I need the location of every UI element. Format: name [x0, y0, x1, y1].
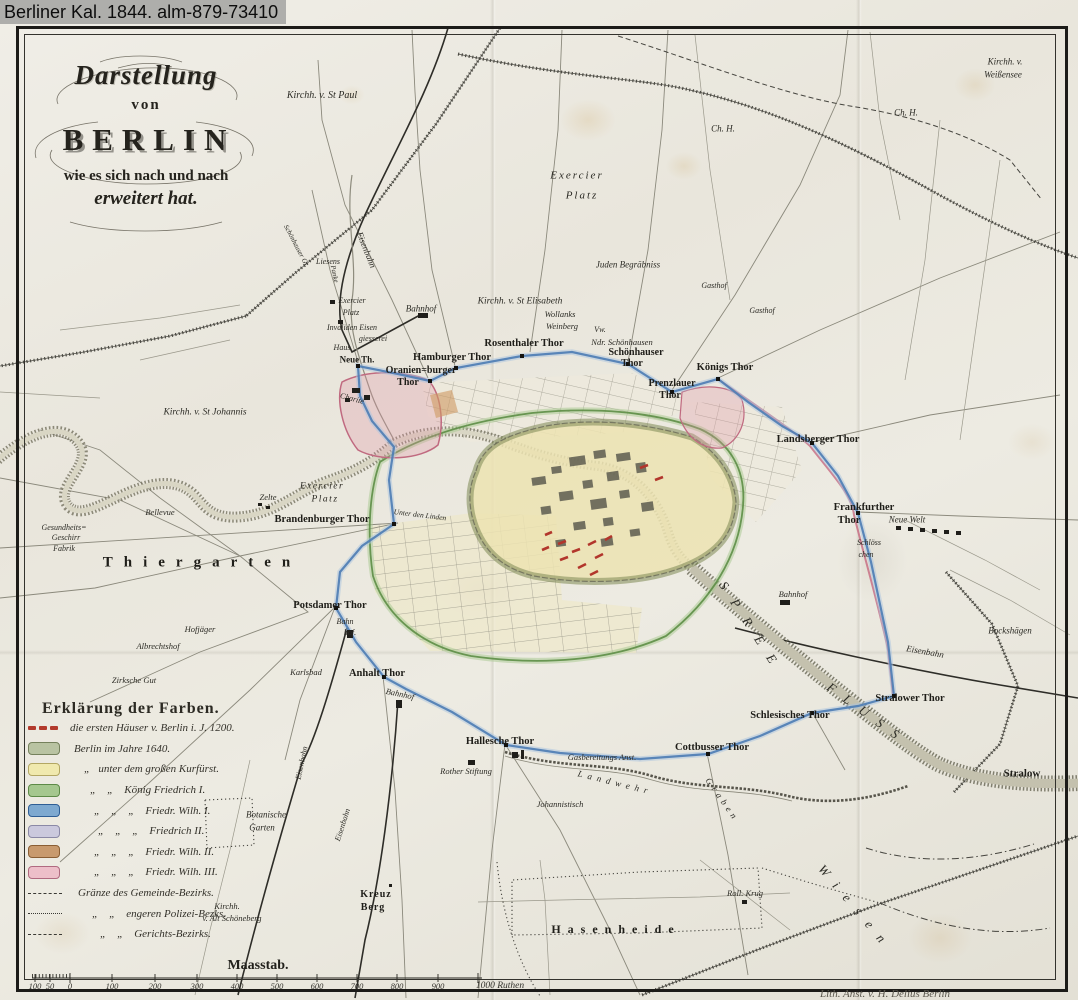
legend-swatch	[28, 866, 68, 879]
legend-swatch	[28, 726, 68, 730]
legend-label: „ unter dem großen Kurfürst.	[68, 763, 219, 775]
legend-heading: Erklärung der Farben.	[28, 700, 278, 718]
map-label: Landwehr	[577, 769, 653, 796]
map-label: Panke	[329, 265, 339, 284]
map-label: Eisenbahn	[295, 746, 310, 781]
title-subtitle-2: erweitert hat.	[36, 188, 256, 210]
map-label: Kirchh. v. St Elisabeth	[478, 297, 563, 307]
map-label: Königs Thor	[697, 363, 754, 374]
legend-label: die ersten Häuser v. Berlin i. J. 1200.	[68, 722, 234, 734]
map-label: Thor	[659, 391, 681, 401]
legend-row: „ unter dem großen Kurfürst.	[28, 759, 278, 780]
map-label: Cottbusser Thor	[675, 743, 749, 754]
map-label: Bahn	[337, 618, 354, 626]
map-label: Exercier	[300, 482, 344, 492]
map-label: Eisenbahn	[355, 231, 378, 270]
map-label: Gesundheits=	[42, 524, 87, 532]
legend-swatch	[28, 893, 68, 894]
map-label: Landsberger Thor	[777, 435, 860, 446]
map-label: Thor	[838, 516, 861, 527]
legend-row: Berlin im Jahre 1640.	[28, 739, 278, 760]
map-label: Kreuz	[360, 890, 391, 900]
legend-row: die ersten Häuser v. Berlin i. J. 1200.	[28, 718, 278, 739]
map-label: Graben	[704, 776, 741, 823]
map-label: Bahnhof	[779, 590, 808, 599]
legend-label: „ „ „ Friedr. Wilh. II.	[68, 846, 214, 858]
map-label: Anhalt Thor	[349, 669, 405, 680]
imprint: Lith. Anst. v. H. Delius Berlin	[820, 988, 950, 1000]
map-label: Hamburger Thor	[413, 353, 491, 364]
map-label: Prenzlauer	[648, 379, 695, 389]
title-subtitle-1: wie es sich nach und nach	[36, 168, 256, 185]
map-label: Weinberg	[546, 322, 578, 331]
map-label: Zelte	[260, 493, 277, 502]
legend-row: Gränze des Gemeinde-Bezirks.	[28, 883, 278, 904]
map-label: Bahnhof	[385, 687, 415, 701]
map-label: Haus	[334, 344, 351, 352]
map-label: Karlsbad	[290, 668, 322, 677]
map-label: Ch. H.	[894, 109, 918, 118]
map-label: Kirchh. v. St Johannis	[163, 408, 246, 418]
map-label: Unter den Linden	[393, 508, 446, 522]
map-label: Stralower Thor	[875, 694, 944, 705]
map-label: Schlöss	[857, 539, 881, 547]
map-label: Thiergarten	[103, 556, 301, 571]
map-label: Brandenburger Thor	[274, 515, 369, 526]
map-label: hof.	[344, 629, 356, 637]
map-label: Stralow	[1004, 769, 1041, 780]
map-label: Oranien=burger	[386, 366, 457, 376]
title-darstellung: Darstellung	[36, 60, 256, 91]
map-label: Platz	[343, 309, 359, 317]
map-sheet: Kirchh. v. St PaulKirchh. v.WeißenseeCh.…	[0, 0, 1078, 1000]
legend-swatch	[28, 934, 68, 935]
map-label: Hofjäger	[185, 625, 216, 634]
map-label: Gasthof	[701, 282, 726, 290]
map-label: Vw.	[594, 326, 606, 334]
legend-label: „ „ „ Friedr. Wilh. I.	[68, 805, 210, 817]
map-label: Potsdamer Thor	[293, 601, 366, 612]
legend-swatch	[28, 825, 68, 838]
legend: Erklärung der Farben. die ersten Häuser …	[28, 700, 278, 945]
map-label: Kirchh. v. St Paul	[287, 91, 357, 101]
legend-row: „ „ engeren Polizei-Bezks.	[28, 903, 278, 924]
map-label: Schlesisches Thor	[750, 711, 829, 722]
map-label: Fabrik	[53, 545, 75, 553]
legend-label: „ „ engeren Polizei-Bezks.	[68, 908, 226, 920]
map-label: Schönhauser	[608, 348, 663, 358]
legend-label: Gränze des Gemeinde-Bezirks.	[68, 887, 214, 899]
legend-entries: die ersten Häuser v. Berlin i. J. 1200.B…	[28, 718, 278, 945]
map-label: Rosenthaler Thor	[484, 339, 563, 350]
map-label: Hasenheide	[551, 923, 680, 935]
map-label: Exercier	[338, 297, 365, 305]
map-label: Juden Begräbniss	[596, 261, 660, 270]
map-label: Zirksche Gut	[112, 676, 156, 685]
legend-row: „ „ „ Friedrich II.	[28, 821, 278, 842]
map-label: Roll. Krug	[727, 889, 763, 898]
map-label: Rother Stiftung	[440, 767, 492, 776]
legend-label: Berlin im Jahre 1640.	[68, 743, 170, 755]
map-label: Neue Th.	[340, 356, 375, 365]
map-label: Neue Welt	[889, 516, 925, 525]
map-label: Johannistisch	[537, 800, 584, 809]
map-label: Thor	[397, 378, 419, 388]
map-label: Ndr. Schönhausen	[591, 338, 652, 347]
legend-swatch	[28, 845, 68, 858]
legend-label: „ „ „ Friedrich II.	[68, 825, 204, 837]
legend-row: „ „ „ Friedr. Wilh. II.	[28, 842, 278, 863]
legend-row: „ „ „ Friedr. Wilh. III.	[28, 862, 278, 883]
legend-row: „ „ König Friedrich I.	[28, 780, 278, 801]
map-label: Berg	[361, 903, 386, 913]
map-label: Frankfurther	[834, 503, 895, 514]
map-label: Gasthof	[749, 307, 774, 315]
map-label: Thor	[621, 359, 643, 369]
legend-label: „ „ König Friedrich I.	[68, 784, 205, 796]
legend-swatch	[28, 763, 68, 776]
map-label: FLUSS	[825, 680, 912, 748]
map-label: Albrechtshof	[136, 642, 179, 651]
title-berlin: BERLIN	[36, 122, 256, 158]
map-label: Eisenbahn	[906, 644, 945, 659]
map-label: Wollanks	[545, 310, 576, 319]
map-label: Charité	[339, 392, 365, 406]
map-label: Hallesche Thor	[466, 737, 534, 748]
map-label: SPREE	[717, 579, 787, 677]
map-label: Bockshägen	[988, 627, 1031, 636]
map-label: Invaliden Eisen	[327, 324, 377, 332]
map-label: Platz	[566, 191, 599, 202]
legend-label: „ „ Gerichts-Bezirks.	[68, 928, 211, 940]
map-label: giesserei	[359, 335, 387, 343]
legend-swatch	[28, 804, 68, 817]
legend-swatch	[28, 913, 68, 914]
map-label: Bellevue	[145, 508, 174, 517]
map-label: Exercier	[550, 171, 603, 182]
watermark-label: Berliner Kal. 1844. alm-879-73410	[0, 0, 286, 24]
legend-row: „ „ Gerichts-Bezirks.	[28, 924, 278, 945]
legend-row: „ „ „ Friedr. Wilh. I.	[28, 800, 278, 821]
title-cartouche: Darstellung von BERLIN wie es sich nach …	[36, 46, 256, 210]
map-label: Platz	[311, 495, 338, 505]
map-label: Schönhauser Gr.	[282, 224, 310, 268]
map-label: Ch. H.	[711, 125, 735, 134]
legend-swatch	[28, 784, 68, 797]
map-label: Bahnhof	[406, 305, 437, 314]
legend-swatch	[28, 742, 68, 755]
map-label: Kirchh. v.	[988, 58, 1023, 67]
map-label: Gasbereitungs Anst.	[568, 753, 636, 762]
map-label: Wiesen	[816, 862, 896, 954]
map-label: chen	[858, 551, 873, 559]
map-label: Eisenbahn	[334, 808, 352, 843]
title-von: von	[36, 97, 256, 114]
map-label: Weißensee	[984, 71, 1022, 80]
map-label: Geschirr	[52, 534, 80, 542]
legend-label: „ „ „ Friedr. Wilh. III.	[68, 866, 218, 878]
